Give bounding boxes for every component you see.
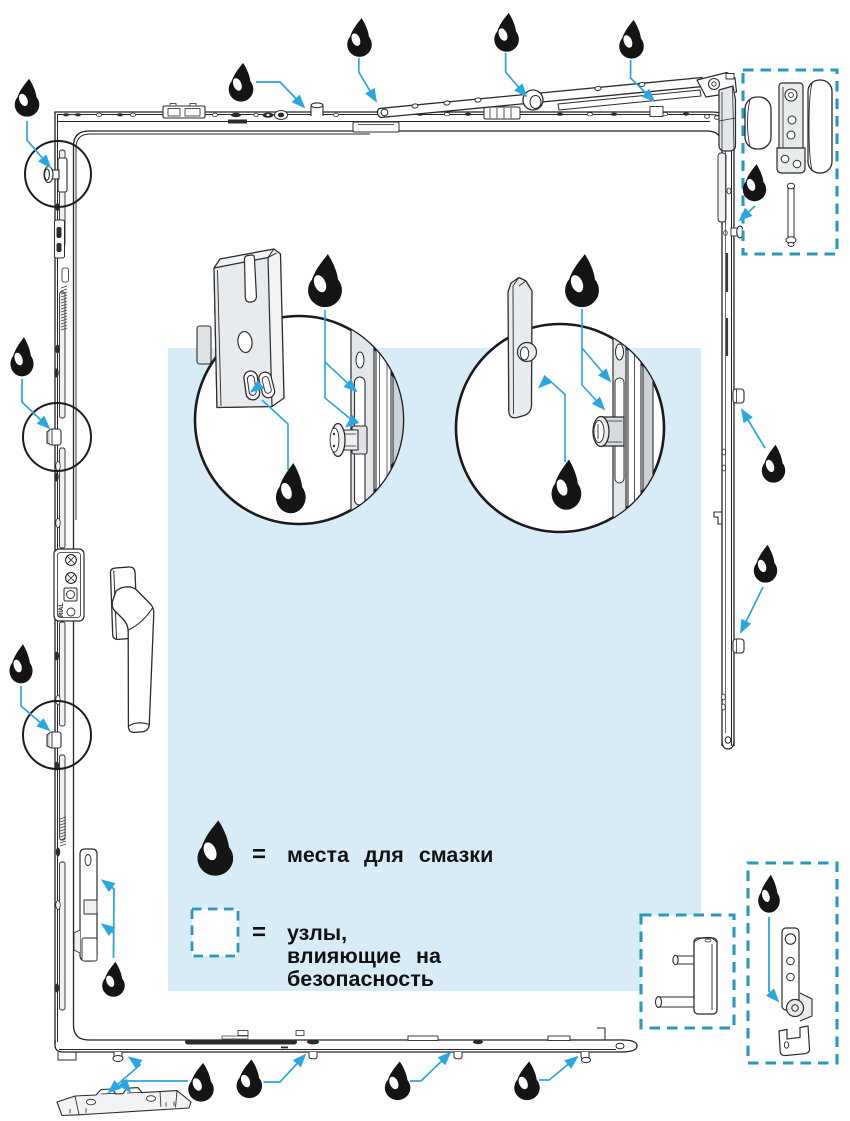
svg-text:=: =	[252, 841, 266, 868]
svg-text:узлы,: узлы,	[287, 921, 347, 945]
svg-text:влияющие на: влияющие на	[287, 944, 442, 968]
svg-text:RIAL: RIAL	[59, 603, 65, 617]
svg-text:места для смазки: места для смазки	[287, 843, 493, 867]
svg-text:безопасность: безопасность	[287, 967, 434, 991]
svg-text:=: =	[252, 919, 266, 946]
